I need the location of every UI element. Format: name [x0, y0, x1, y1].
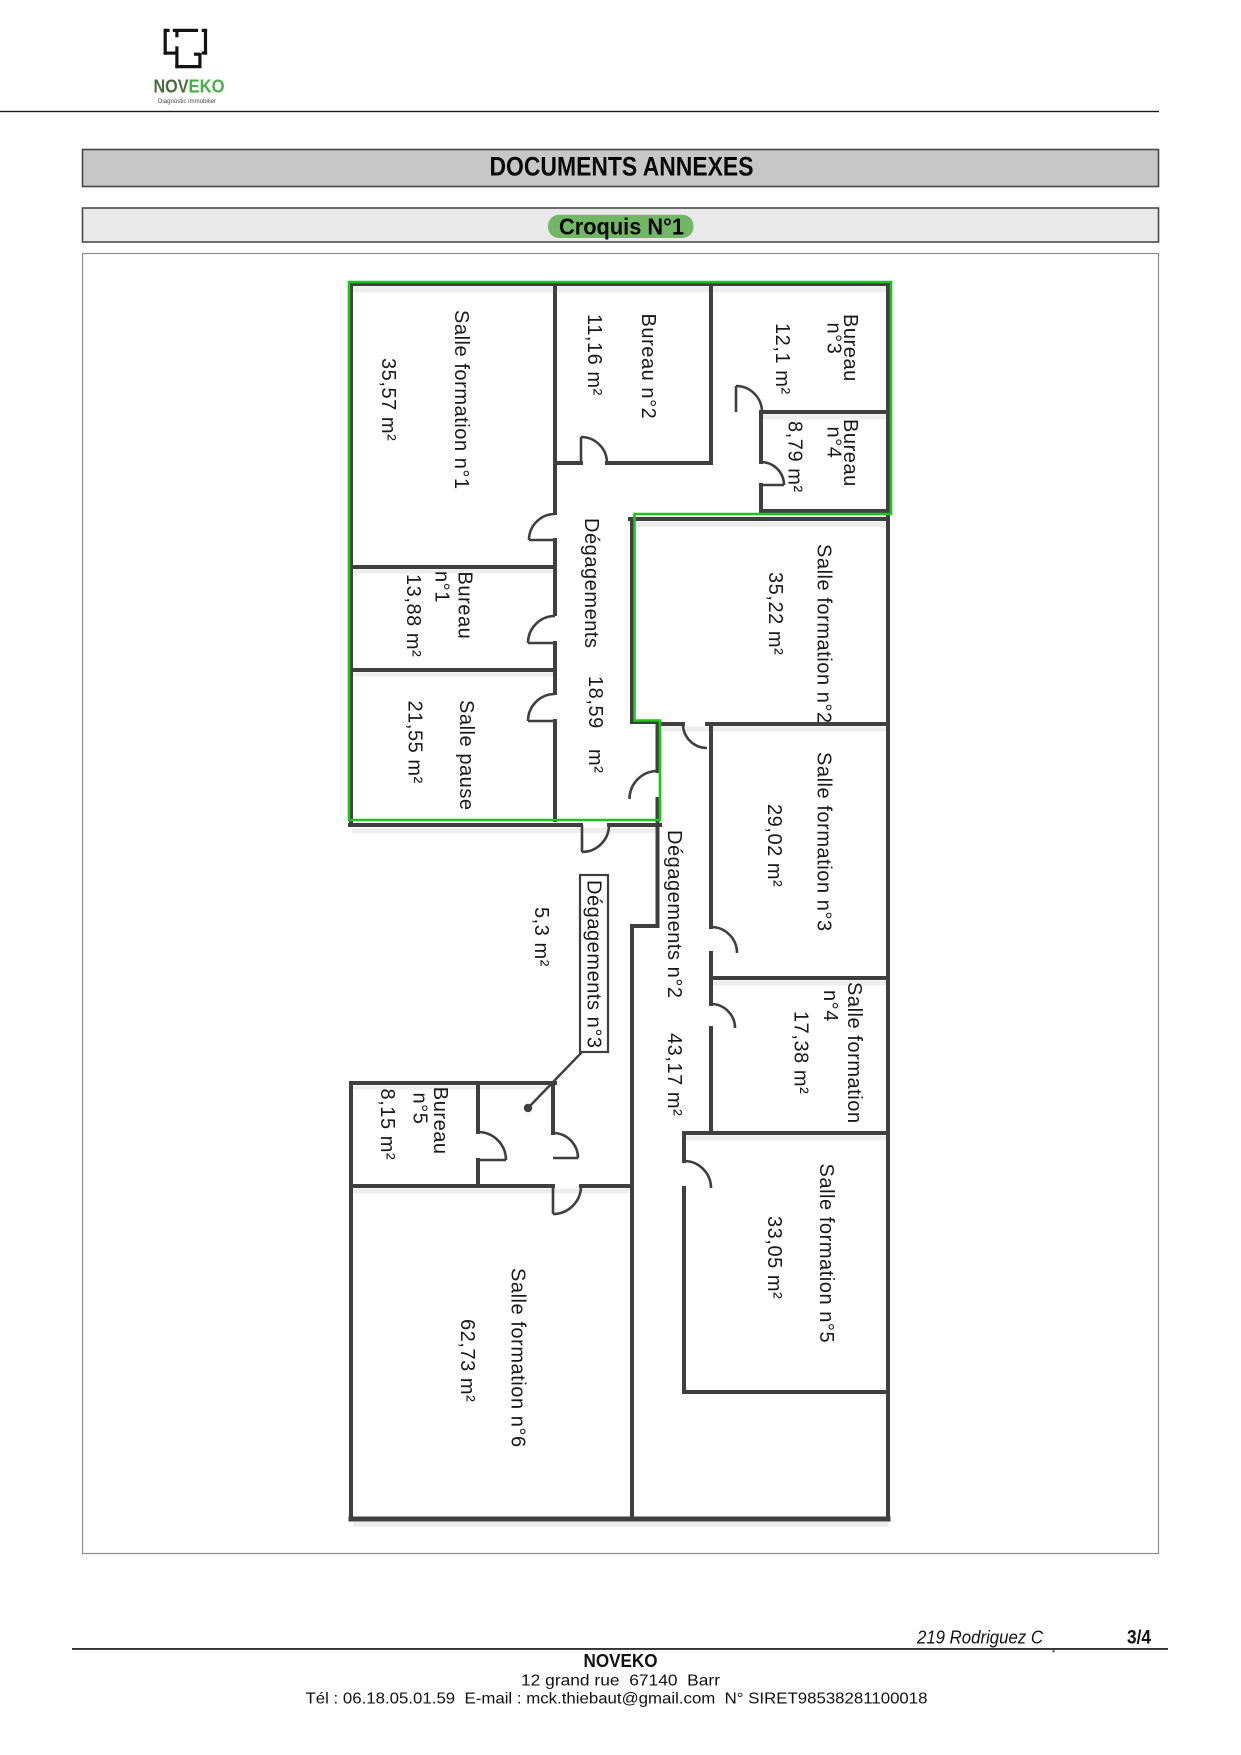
svg-text:43,17 m²: 43,17 m² [663, 1033, 685, 1116]
svg-text:3/4: 3/4 [1127, 1628, 1151, 1649]
svg-text:Dégagements: Dégagements [580, 518, 602, 649]
svg-text:m²: m² [584, 749, 606, 773]
svg-text:Salle formation n°5: Salle formation n°5 [815, 1164, 837, 1344]
svg-text:11,16 m²: 11,16 m² [583, 314, 605, 396]
svg-text:12 grand rue 67140 Barr: 12 grand rue 67140 Barr [521, 1673, 721, 1690]
svg-text:Salle formation n°1: Salle formation n°1 [450, 310, 472, 490]
svg-text:12,1 m²: 12,1 m² [771, 323, 793, 395]
svg-text:Salle pause: Salle pause [455, 700, 477, 811]
svg-text:n°4: n°4 [819, 990, 841, 1022]
svg-text:21,55 m²: 21,55 m² [404, 701, 426, 784]
svg-text:18,59: 18,59 [584, 676, 606, 729]
svg-text:Diagnostic immobilier: Diagnostic immobilier [158, 98, 217, 105]
svg-text:Bureau: Bureau [429, 1087, 451, 1155]
svg-text:33,05 m²: 33,05 m² [763, 1216, 785, 1299]
svg-text:Dégagements n°2: Dégagements n°2 [663, 830, 685, 999]
svg-text:29,02 m²: 29,02 m² [763, 804, 785, 887]
svg-text:13,88 m²: 13,88 m² [402, 574, 424, 657]
svg-text:n°1: n°1 [431, 571, 453, 603]
svg-text:5,3 m²: 5,3 m² [530, 907, 552, 967]
svg-text:35,22 m²: 35,22 m² [764, 572, 786, 655]
svg-text:8,15 m²: 8,15 m² [376, 1089, 398, 1161]
svg-text:n°5: n°5 [409, 1093, 431, 1125]
svg-text:Bureau: Bureau [454, 572, 476, 640]
svg-text:Salle formation n°6: Salle formation n°6 [507, 1268, 529, 1448]
svg-text:8,79 m²: 8,79 m² [784, 421, 806, 493]
svg-text:62,73 m²: 62,73 m² [456, 1319, 478, 1402]
svg-text:NOVEKO: NOVEKO [584, 1651, 658, 1671]
svg-text:219 Rodriguez C: 219 Rodriguez C [916, 1628, 1044, 1648]
svg-text:Tél : 06.18.05.01.59 E-mail :: Tél : 06.18.05.01.59 E-mail : mck.thieba… [306, 1691, 928, 1708]
svg-text:Salle formation n°3: Salle formation n°3 [813, 752, 835, 932]
svg-text:35,57 m²: 35,57 m² [377, 358, 399, 441]
svg-text:n°4: n°4 [823, 427, 845, 459]
svg-text:Dégagements n°3: Dégagements n°3 [583, 880, 605, 1049]
svg-text:NOVEKO: NOVEKO [154, 77, 225, 97]
svg-text:Bureau n°2: Bureau n°2 [637, 314, 659, 420]
svg-text:Salle formation n°2: Salle formation n°2 [813, 544, 835, 724]
svg-text:DOCUMENTS ANNEXES: DOCUMENTS ANNEXES [490, 152, 754, 182]
svg-text:Croquis N°1: Croquis N°1 [559, 214, 684, 240]
svg-text:17,38 m²: 17,38 m² [790, 1011, 812, 1094]
svg-text:Salle formation: Salle formation [843, 982, 865, 1124]
svg-text:n°3: n°3 [823, 323, 845, 355]
